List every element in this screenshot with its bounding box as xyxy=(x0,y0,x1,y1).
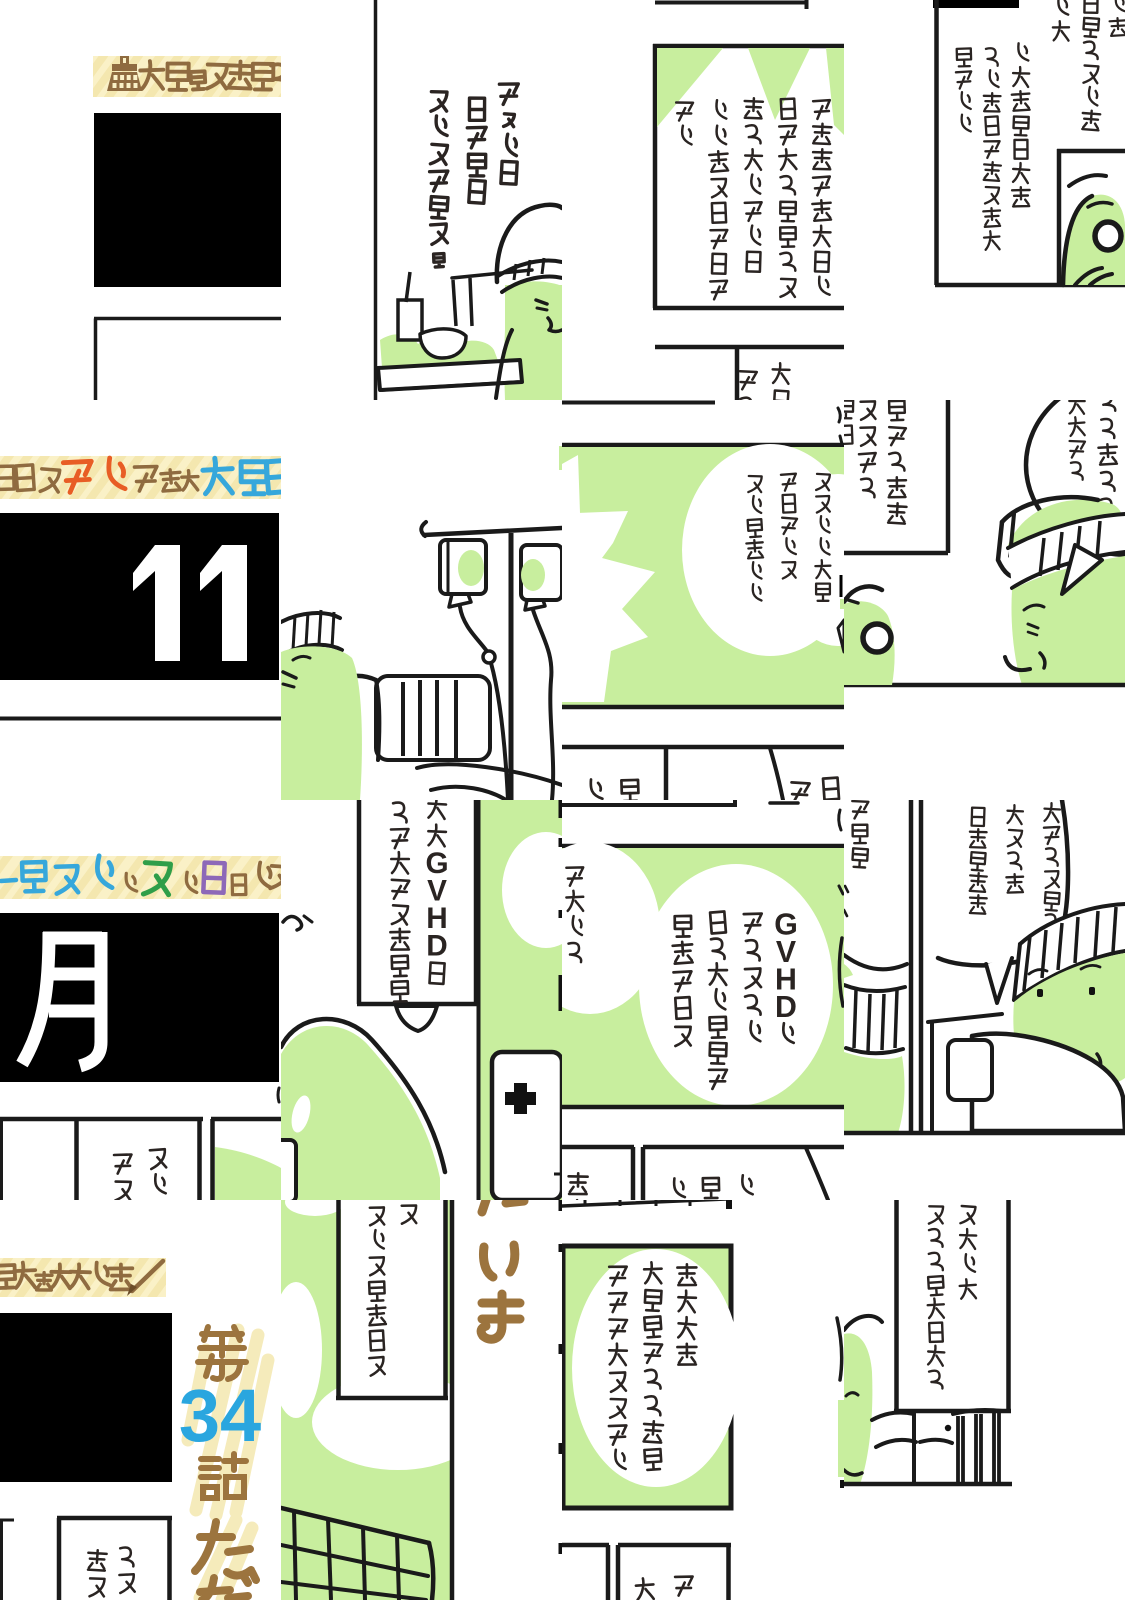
svg-text:34: 34 xyxy=(179,1374,261,1457)
svg-text:D: D xyxy=(775,991,797,1024)
svg-text:D: D xyxy=(426,930,447,963)
